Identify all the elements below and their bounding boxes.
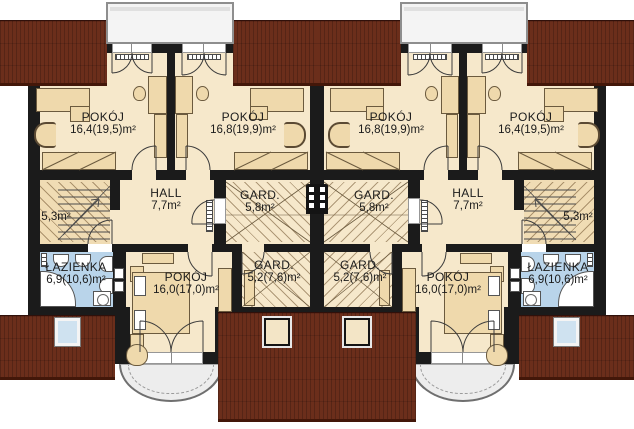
room-area: 7,7m² (118, 200, 214, 214)
opening-nook-hall (110, 210, 120, 244)
door-bathroom (522, 244, 546, 252)
dresser-back-bedroom (460, 253, 492, 264)
radiator-window-inner (413, 54, 447, 60)
room-name: ŁAZIENKA (37, 260, 115, 274)
label-wardrobe-small: GARD. 5,8m² (218, 188, 302, 216)
door-hall-bedroom-inner (424, 170, 448, 180)
radiator-window-outer (115, 54, 149, 60)
label-bedroom-front-inner: POKÓJ 16,8(19,9)m² (326, 110, 456, 138)
room-area: 5,8m² (218, 202, 302, 216)
room-area: 5,2(7,6)m² (234, 272, 314, 286)
label-bedroom-front-outer: POKÓJ 16,4(19,5)m² (38, 110, 168, 138)
room-name: ŁAZIENKA (519, 260, 597, 274)
room-name: GARD. (218, 188, 302, 202)
room-name: POKÓJ (126, 270, 246, 284)
pillow (134, 310, 146, 330)
label-bathroom: ŁAZIENKA 6,9(10,6)m² (519, 260, 597, 288)
roof-panel-front-center (233, 20, 317, 86)
label-bedroom-back: POKÓJ 16,0(17,0)m² (126, 270, 246, 298)
room-area: 6,9(10,6)m² (37, 274, 115, 288)
skylight-window (344, 318, 370, 346)
room-area: 16,0(17,0)m² (388, 284, 508, 298)
wardrobe-unit-inner (234, 152, 308, 170)
balcony (411, 364, 515, 402)
window-mullion (171, 352, 172, 364)
desk-outer (467, 76, 486, 114)
chimney-flue (306, 184, 317, 214)
room-area: 5,8m² (332, 202, 416, 216)
opening-nook-hall (514, 210, 524, 244)
unit-left: POKÓJ 16,4(19,5)m² POKÓJ 16,8(19,9)m² HA… (0, 0, 317, 429)
dormer (400, 2, 528, 44)
room-name: HALL (420, 186, 516, 200)
room-area: 16,4(19,5)m² (466, 124, 596, 138)
door-hall-bedroom-outer (478, 170, 502, 180)
room-name: GARD. (320, 258, 400, 272)
room-name: HALL (118, 186, 214, 200)
desk-chair-inner (425, 86, 438, 101)
label-wardrobe-large: GARD. 5,2(7,6)m² (320, 258, 400, 286)
room-name: GARD. (234, 258, 314, 272)
room-area: 5,3m² (550, 211, 606, 225)
door-hall-bedroom-outer (132, 170, 156, 180)
label-bedroom-back: POKÓJ 16,0(17,0)m² (388, 270, 508, 298)
label-wardrobe-large: GARD. 5,2(7,6)m² (234, 258, 314, 286)
desk-outer (148, 76, 167, 114)
dresser-back-bedroom (142, 253, 174, 264)
room-name: POKÓJ (466, 110, 596, 124)
roof-panel-front-outer (527, 20, 634, 86)
desk-chair-outer (133, 86, 146, 101)
label-wardrobe-small: GARD. 5,8m² (332, 188, 416, 216)
pillow (488, 310, 500, 330)
door-bathroom (88, 244, 112, 252)
label-hall: HALL 7,7m² (420, 186, 516, 214)
duct-box (114, 281, 124, 292)
door-wardrobe-large (242, 244, 264, 252)
room-name: POKÓJ (178, 110, 308, 124)
unit-right: POKÓJ 16,4(19,5)m² POKÓJ 16,8(19,9)m² HA… (317, 0, 634, 429)
chimney-flue (317, 184, 328, 214)
dormer (106, 2, 234, 44)
label-attic-nook: 5,3m² (28, 211, 84, 225)
duct-box (114, 268, 124, 279)
desk-inner (441, 76, 459, 114)
room-name: POKÓJ (326, 110, 456, 124)
label-hall: HALL 7,7m² (118, 186, 214, 214)
room-name: POKÓJ (388, 270, 508, 284)
room-area: 16,4(19,5)m² (38, 124, 168, 138)
radiator-window-inner (187, 54, 221, 60)
desk-chair-outer (488, 86, 501, 101)
armchair-back-bedroom (486, 344, 508, 366)
desk-chair-inner (196, 86, 209, 101)
room-area: 16,8(19,9)m² (178, 124, 308, 138)
door-hall-bedroom-inner (186, 170, 210, 180)
skylight-window (264, 318, 290, 346)
roof-panel-front-outer (0, 20, 107, 86)
room-area: 5,3m² (28, 211, 84, 225)
window-mullion (462, 352, 463, 364)
room-area: 16,0(17,0)m² (126, 284, 246, 298)
desk-inner (175, 76, 193, 114)
balcony (119, 364, 223, 402)
label-attic-nook: 5,3m² (550, 211, 606, 225)
room-name: POKÓJ (38, 110, 168, 124)
label-bathroom: ŁAZIENKA 6,9(10,6)m² (37, 260, 115, 288)
label-bedroom-front-inner: POKÓJ 16,8(19,9)m² (178, 110, 308, 138)
wardrobe-unit-inner (326, 152, 400, 170)
armchair-back-bedroom (126, 344, 148, 366)
radiator-window-outer (485, 54, 519, 60)
washing-machine (523, 291, 541, 306)
room-area: 16,8(19,9)m² (326, 124, 456, 138)
wardrobe-unit-outer (42, 152, 116, 170)
room-area: 5,2(7,6)m² (320, 272, 400, 286)
room-name: GARD. (332, 188, 416, 202)
roof-panel-front-center (317, 20, 401, 86)
room-area: 7,7m² (420, 200, 516, 214)
room-area: 6,9(10,6)m² (519, 274, 597, 288)
floor-plan: POKÓJ 16,4(19,5)m² POKÓJ 16,8(19,9)m² HA… (0, 0, 634, 429)
door-bedroom-back (422, 244, 446, 252)
skylight-window (55, 318, 80, 346)
wardrobe-unit-outer (518, 152, 592, 170)
door-wardrobe-large (370, 244, 392, 252)
skylight-window (554, 318, 579, 346)
label-bedroom-front-outer: POKÓJ 16,4(19,5)m² (466, 110, 596, 138)
washing-machine (93, 291, 111, 306)
door-bedroom-back (188, 244, 212, 252)
